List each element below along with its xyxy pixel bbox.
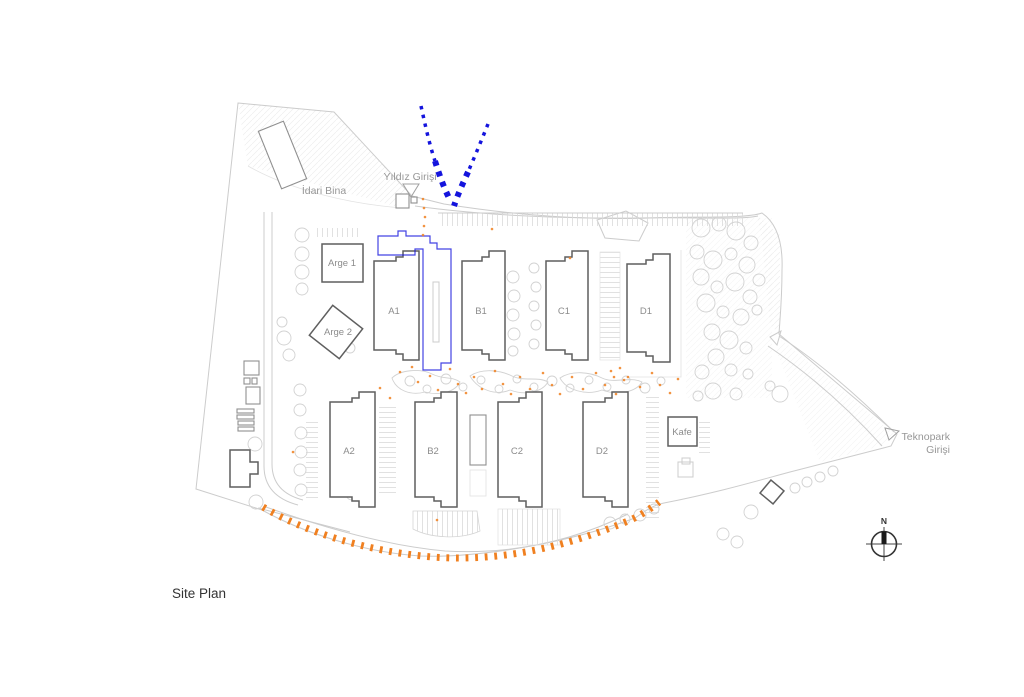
label-kafe: Kafe [672, 427, 692, 438]
label-teknopark-girisi: Girişi [926, 444, 950, 456]
building-southwest [230, 450, 258, 487]
label-d1: D1 [640, 306, 652, 317]
label-b2: B2 [427, 446, 439, 457]
site-plan-drawing: N İdari Bina Arge 1 Arge 2 A1 B1 C1 D1 A… [0, 0, 1024, 697]
label-c2: C2 [511, 446, 523, 457]
label-a2: A2 [343, 446, 355, 457]
tree-rows-center [507, 263, 541, 356]
north-needle [882, 532, 887, 545]
route-yildiz-entry [421, 106, 488, 206]
label-arge1: Arge 1 [328, 258, 356, 269]
page-title: Site Plan [172, 586, 226, 601]
label-idari-bina: İdari Bina [302, 184, 347, 197]
courtyard-landscape [392, 371, 665, 394]
compass-north-label: N [881, 516, 887, 526]
label-d2: D2 [596, 446, 608, 457]
building-narrow-center [470, 415, 486, 465]
label-yildiz-girisi: Yıldız Girişi [383, 171, 436, 183]
label-teknopark: Teknopark [902, 431, 951, 443]
label-b1: B1 [475, 306, 487, 317]
building-rotated-southeast [760, 480, 784, 504]
north-compass: N [866, 516, 902, 561]
label-c1: C1 [558, 306, 570, 317]
site-plan-canvas: N İdari Bina Arge 1 Arge 2 A1 B1 C1 D1 A… [0, 0, 1024, 697]
gate-house [396, 194, 409, 208]
label-arge2: Arge 2 [324, 327, 352, 338]
label-a1: A1 [388, 306, 400, 317]
